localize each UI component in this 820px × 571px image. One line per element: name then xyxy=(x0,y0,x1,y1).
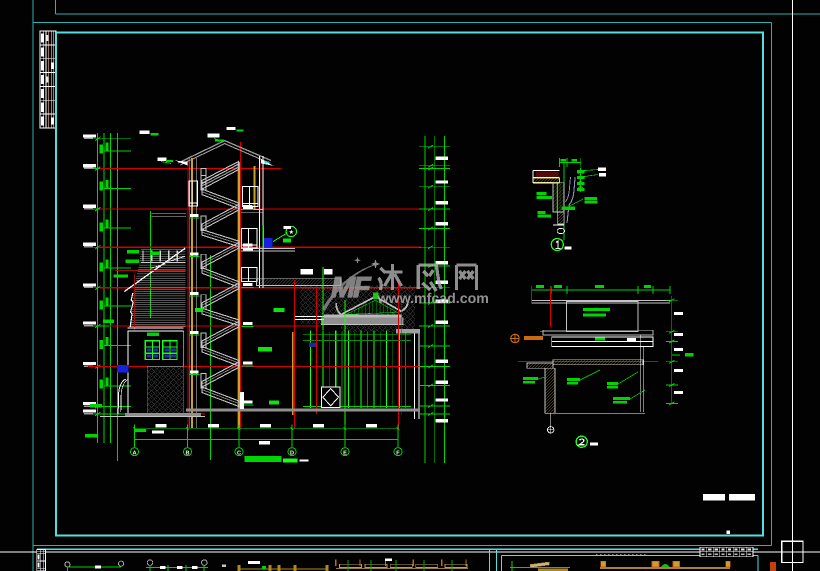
svg-text:A: A xyxy=(132,450,136,456)
svg-text:D: D xyxy=(290,450,294,456)
svg-text:C: C xyxy=(237,450,241,456)
svg-text:F: F xyxy=(396,450,400,456)
svg-text:B: B xyxy=(185,450,189,456)
svg-text:www.mfcad.com: www.mfcad.com xyxy=(377,291,489,307)
svg-text:E: E xyxy=(343,450,347,456)
svg-text:F: F xyxy=(353,272,372,304)
svg-text:★: ★ xyxy=(289,229,294,236)
